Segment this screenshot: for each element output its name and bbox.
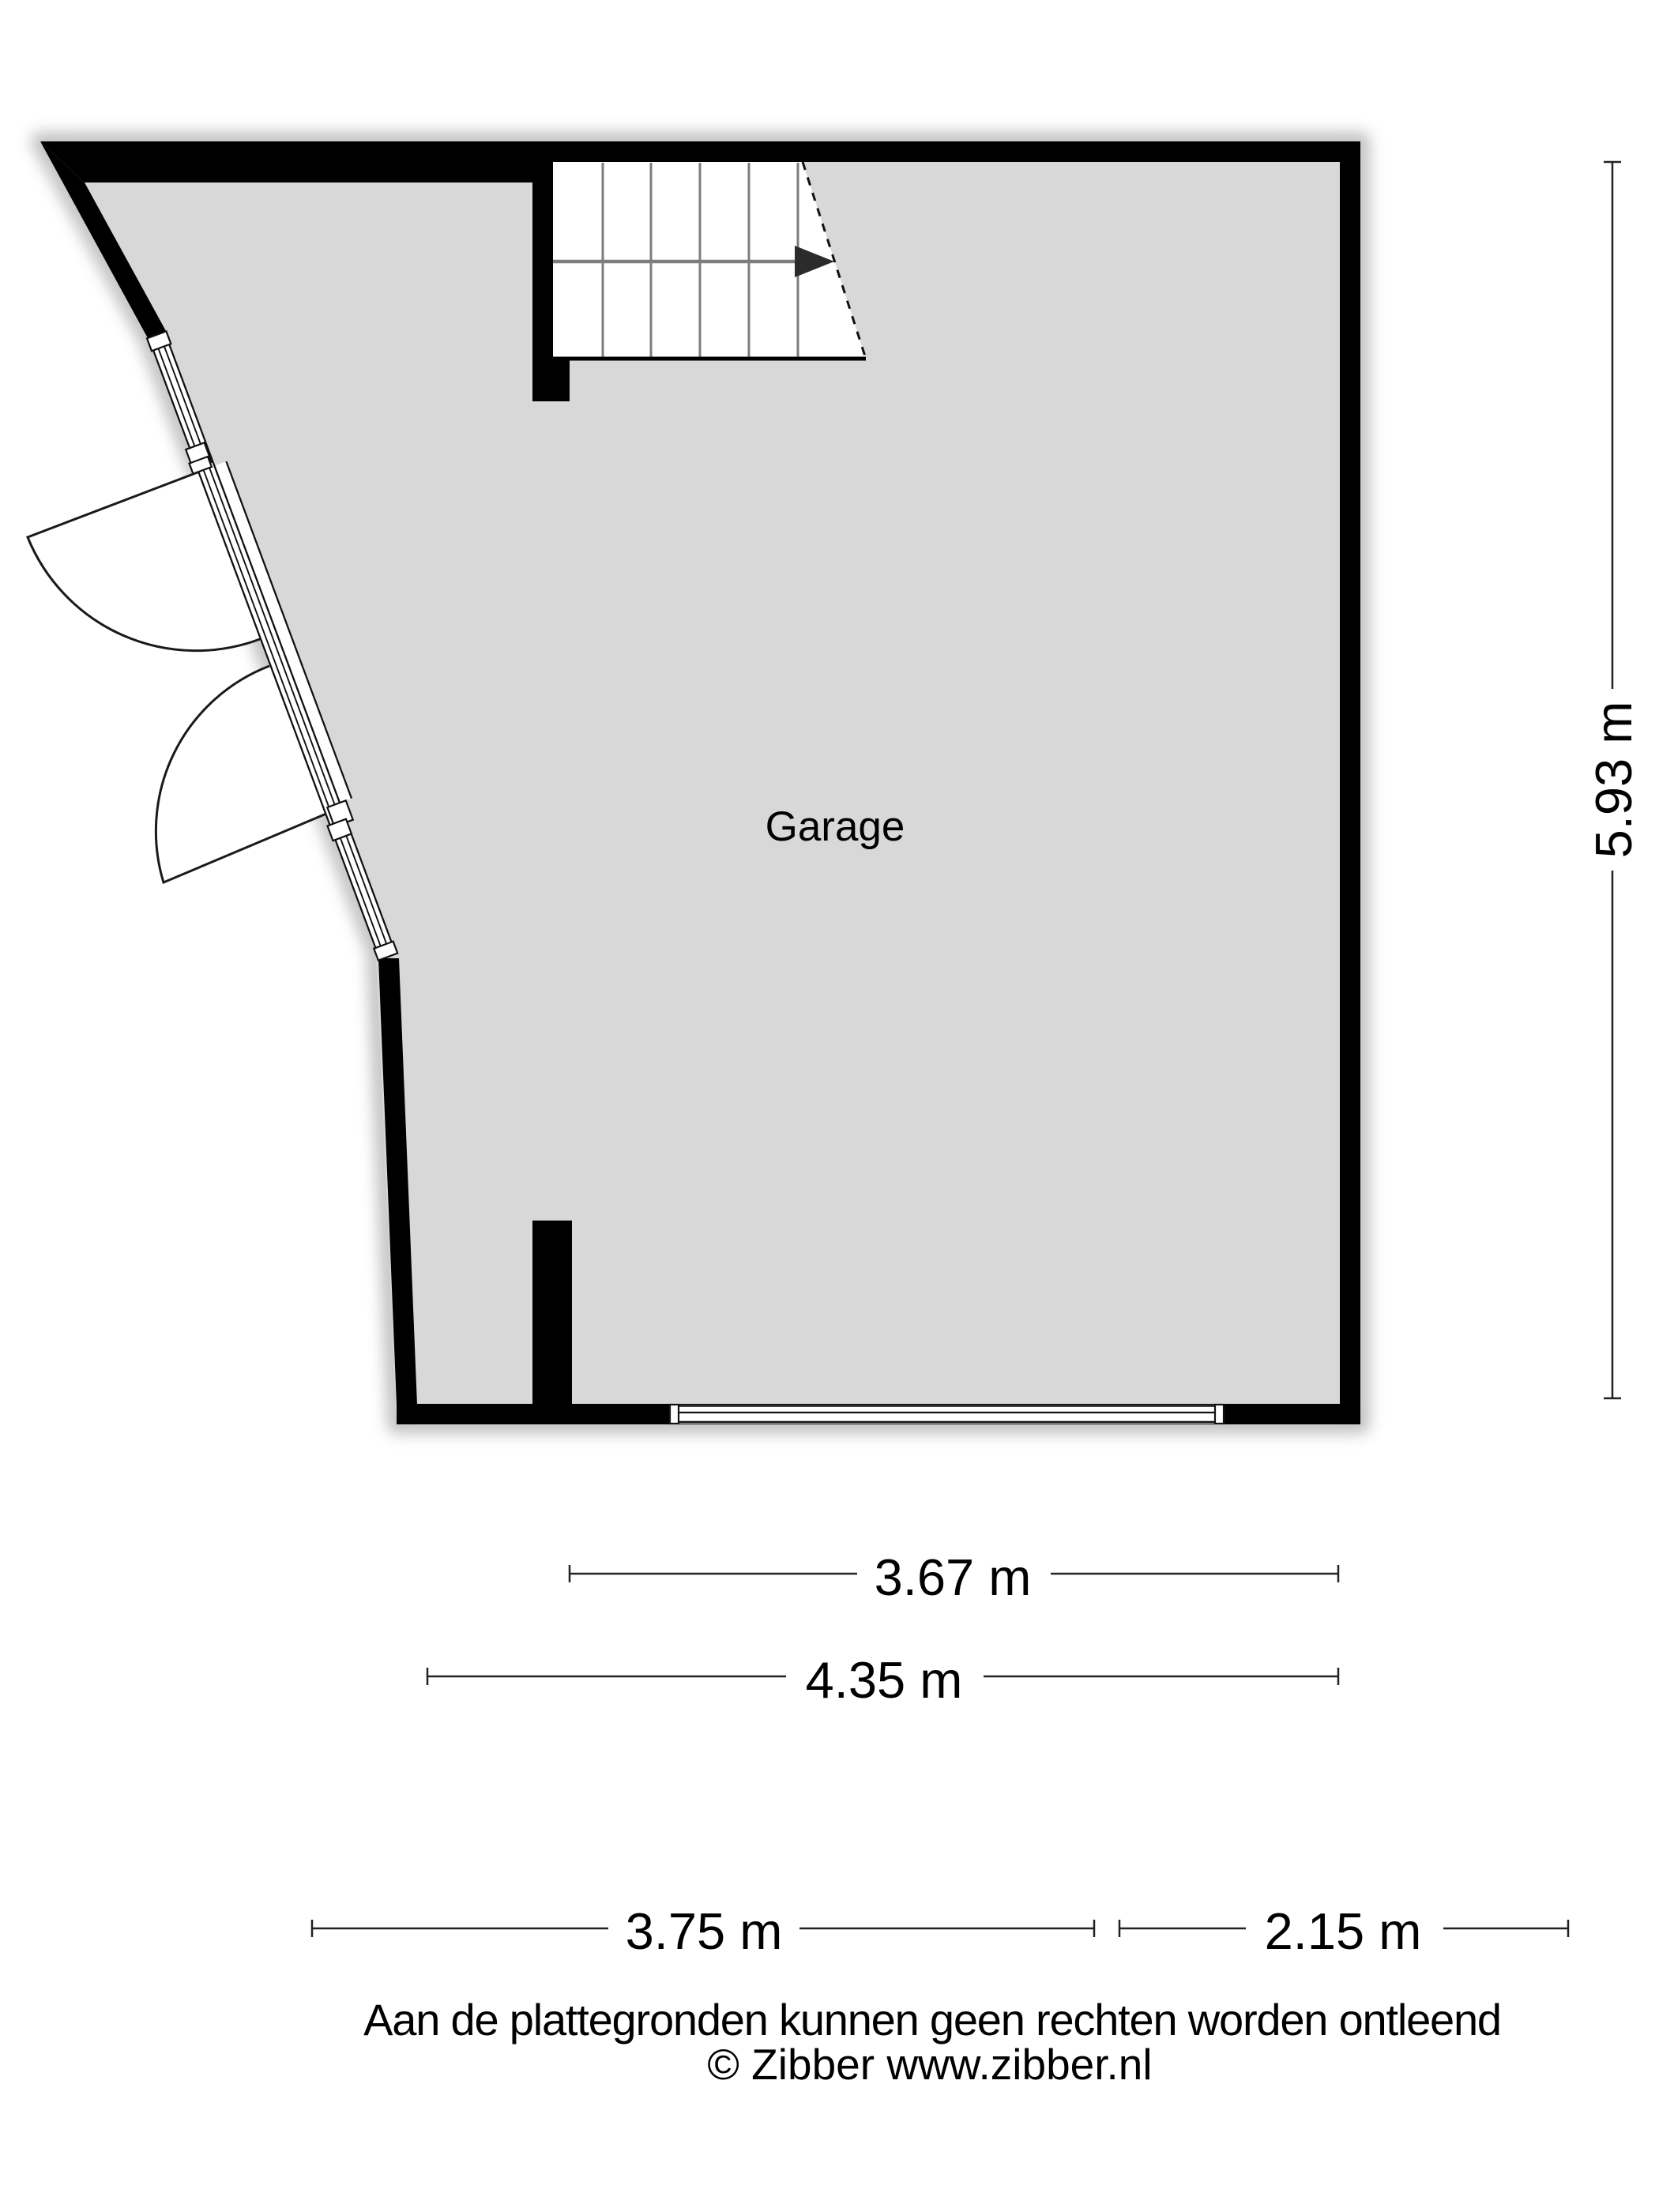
svg-text:2.15 m: 2.15 m — [1265, 1902, 1422, 1960]
svg-text:5.93 m: 5.93 m — [1585, 702, 1642, 859]
svg-text:3.67 m: 3.67 m — [875, 1548, 1032, 1606]
svg-text:Garage: Garage — [766, 803, 905, 850]
svg-text:3.75 m: 3.75 m — [626, 1902, 783, 1960]
svg-text:© Zibber www.zibber.nl: © Zibber www.zibber.nl — [707, 2040, 1152, 2089]
svg-text:4.35 m: 4.35 m — [806, 1651, 963, 1709]
svg-text:Aan de plattegronden kunnen ge: Aan de plattegronden kunnen geen rechten… — [363, 1995, 1501, 2045]
